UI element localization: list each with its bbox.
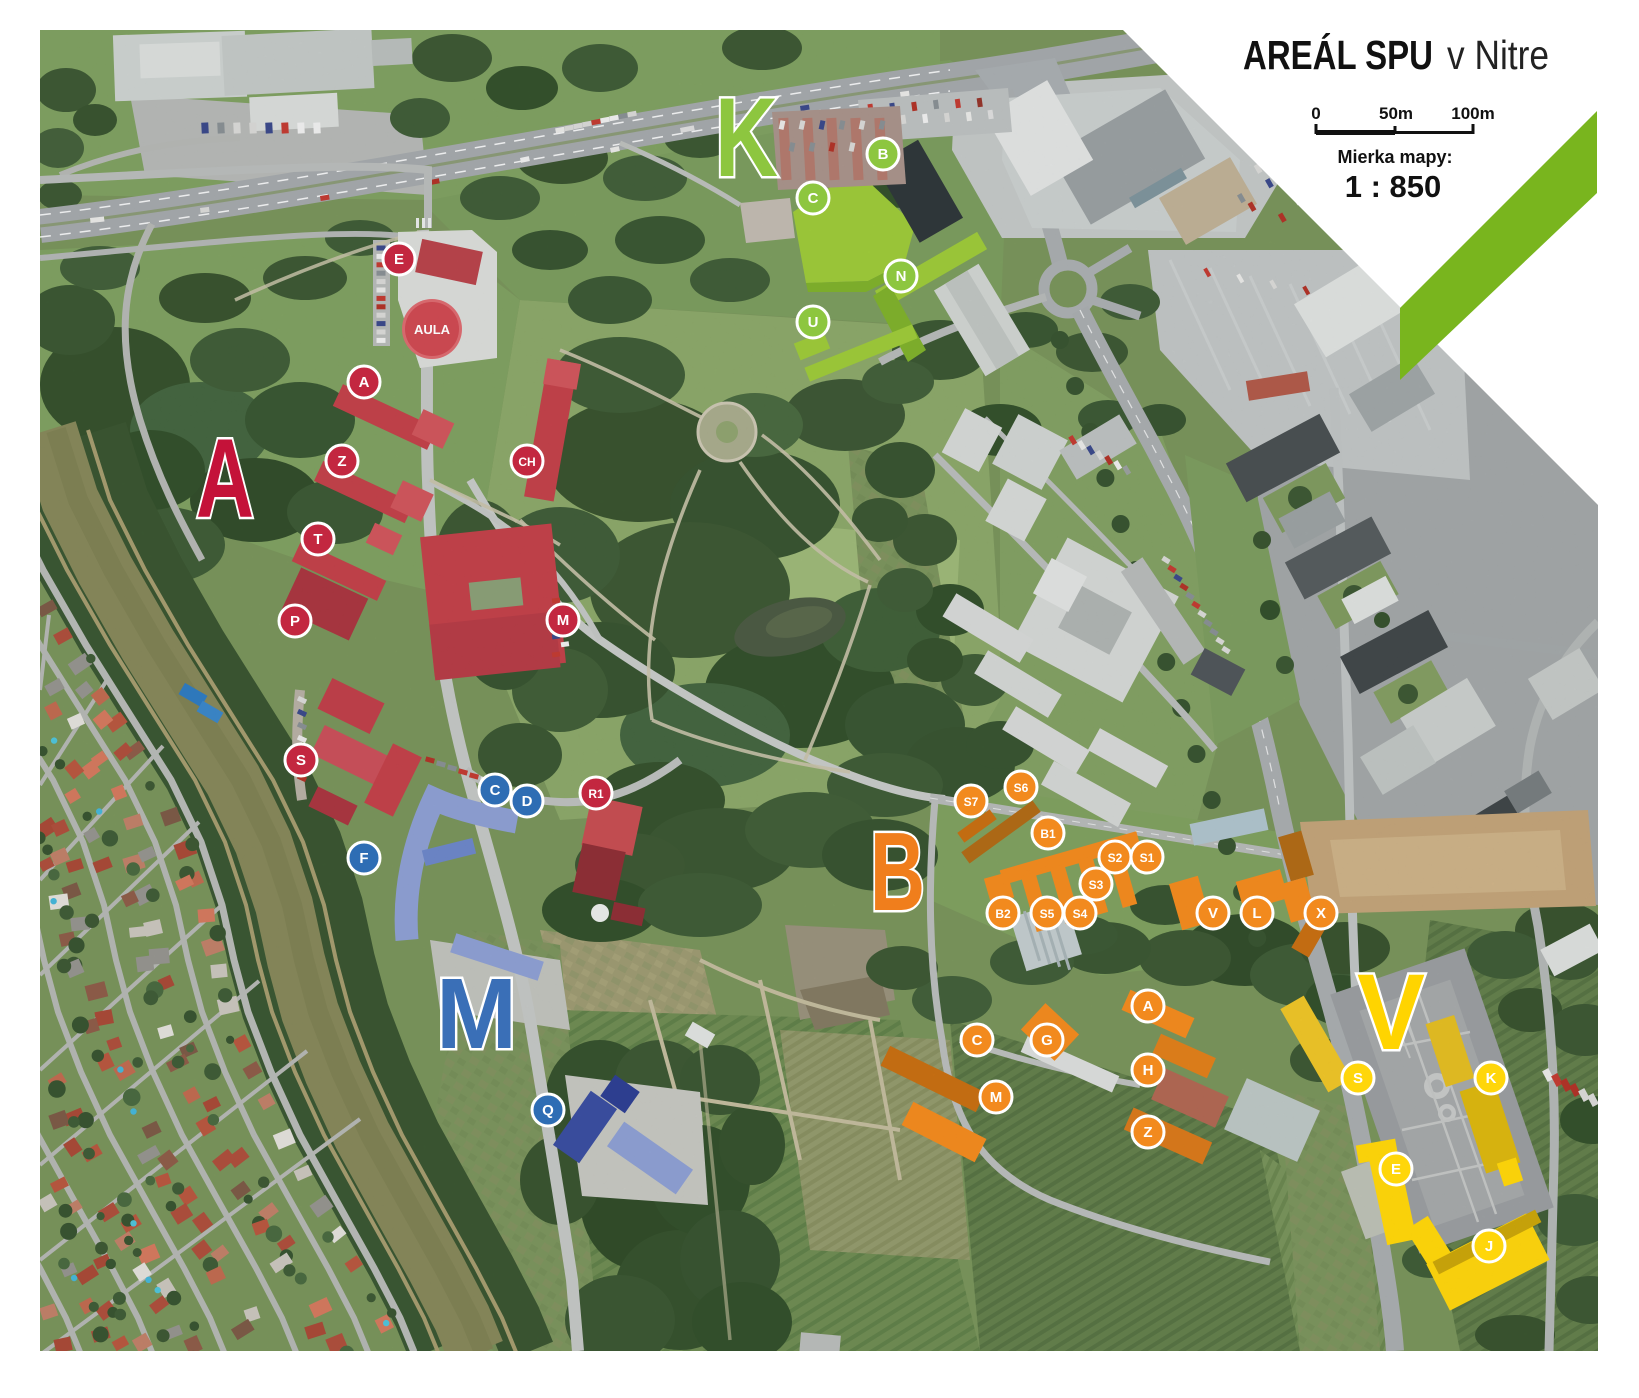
svg-text:E: E bbox=[1391, 1161, 1401, 1178]
svg-text:v Nitre: v Nitre bbox=[1447, 32, 1549, 78]
svg-text:S7: S7 bbox=[964, 795, 979, 809]
svg-text:A: A bbox=[1143, 998, 1154, 1015]
svg-text:A: A bbox=[196, 416, 254, 541]
svg-text:V: V bbox=[1357, 951, 1425, 1072]
svg-text:L: L bbox=[1252, 905, 1261, 922]
svg-text:M: M bbox=[436, 958, 517, 1070]
svg-text:S1: S1 bbox=[1140, 851, 1155, 865]
svg-text:P: P bbox=[290, 613, 300, 630]
svg-text:D: D bbox=[522, 793, 533, 810]
svg-text:AREÁL SPU: AREÁL SPU bbox=[1243, 32, 1433, 78]
svg-text:C: C bbox=[490, 782, 501, 799]
svg-text:CH: CH bbox=[518, 455, 535, 469]
svg-text:G: G bbox=[1041, 1032, 1053, 1049]
svg-text:Z: Z bbox=[1143, 1124, 1152, 1141]
svg-text:50m: 50m bbox=[1379, 104, 1413, 123]
svg-text:C: C bbox=[972, 1032, 983, 1049]
svg-text:S: S bbox=[296, 752, 306, 769]
svg-text:C: C bbox=[808, 190, 819, 207]
svg-text:M: M bbox=[557, 612, 570, 629]
svg-text:100m: 100m bbox=[1451, 104, 1494, 123]
svg-text:F: F bbox=[359, 850, 368, 867]
svg-text:S4: S4 bbox=[1073, 907, 1088, 921]
svg-text:1 : 850: 1 : 850 bbox=[1345, 169, 1442, 204]
svg-text:0: 0 bbox=[1311, 104, 1320, 123]
svg-text:A: A bbox=[359, 374, 370, 391]
svg-text:S2: S2 bbox=[1108, 851, 1123, 865]
svg-text:T: T bbox=[313, 531, 322, 548]
svg-text:Z: Z bbox=[337, 453, 346, 470]
svg-text:S5: S5 bbox=[1040, 907, 1055, 921]
svg-text:Mierka mapy:: Mierka mapy: bbox=[1337, 147, 1452, 167]
svg-text:E: E bbox=[394, 251, 404, 268]
svg-text:Q: Q bbox=[542, 1102, 554, 1119]
svg-text:B: B bbox=[870, 810, 925, 934]
svg-text:B: B bbox=[878, 146, 889, 163]
svg-text:K: K bbox=[715, 75, 778, 200]
svg-text:U: U bbox=[808, 314, 819, 331]
svg-text:X: X bbox=[1316, 905, 1326, 922]
svg-text:M: M bbox=[990, 1089, 1003, 1106]
svg-text:N: N bbox=[896, 268, 907, 285]
svg-text:K: K bbox=[1486, 1070, 1497, 1087]
svg-text:S6: S6 bbox=[1014, 781, 1029, 795]
svg-text:S: S bbox=[1353, 1070, 1363, 1087]
svg-text:H: H bbox=[1143, 1062, 1154, 1079]
svg-text:S3: S3 bbox=[1089, 878, 1104, 892]
svg-text:R1: R1 bbox=[588, 787, 604, 801]
svg-text:B2: B2 bbox=[995, 907, 1011, 921]
svg-text:J: J bbox=[1485, 1238, 1493, 1255]
svg-text:V: V bbox=[1208, 905, 1218, 922]
svg-text:B1: B1 bbox=[1040, 827, 1056, 841]
